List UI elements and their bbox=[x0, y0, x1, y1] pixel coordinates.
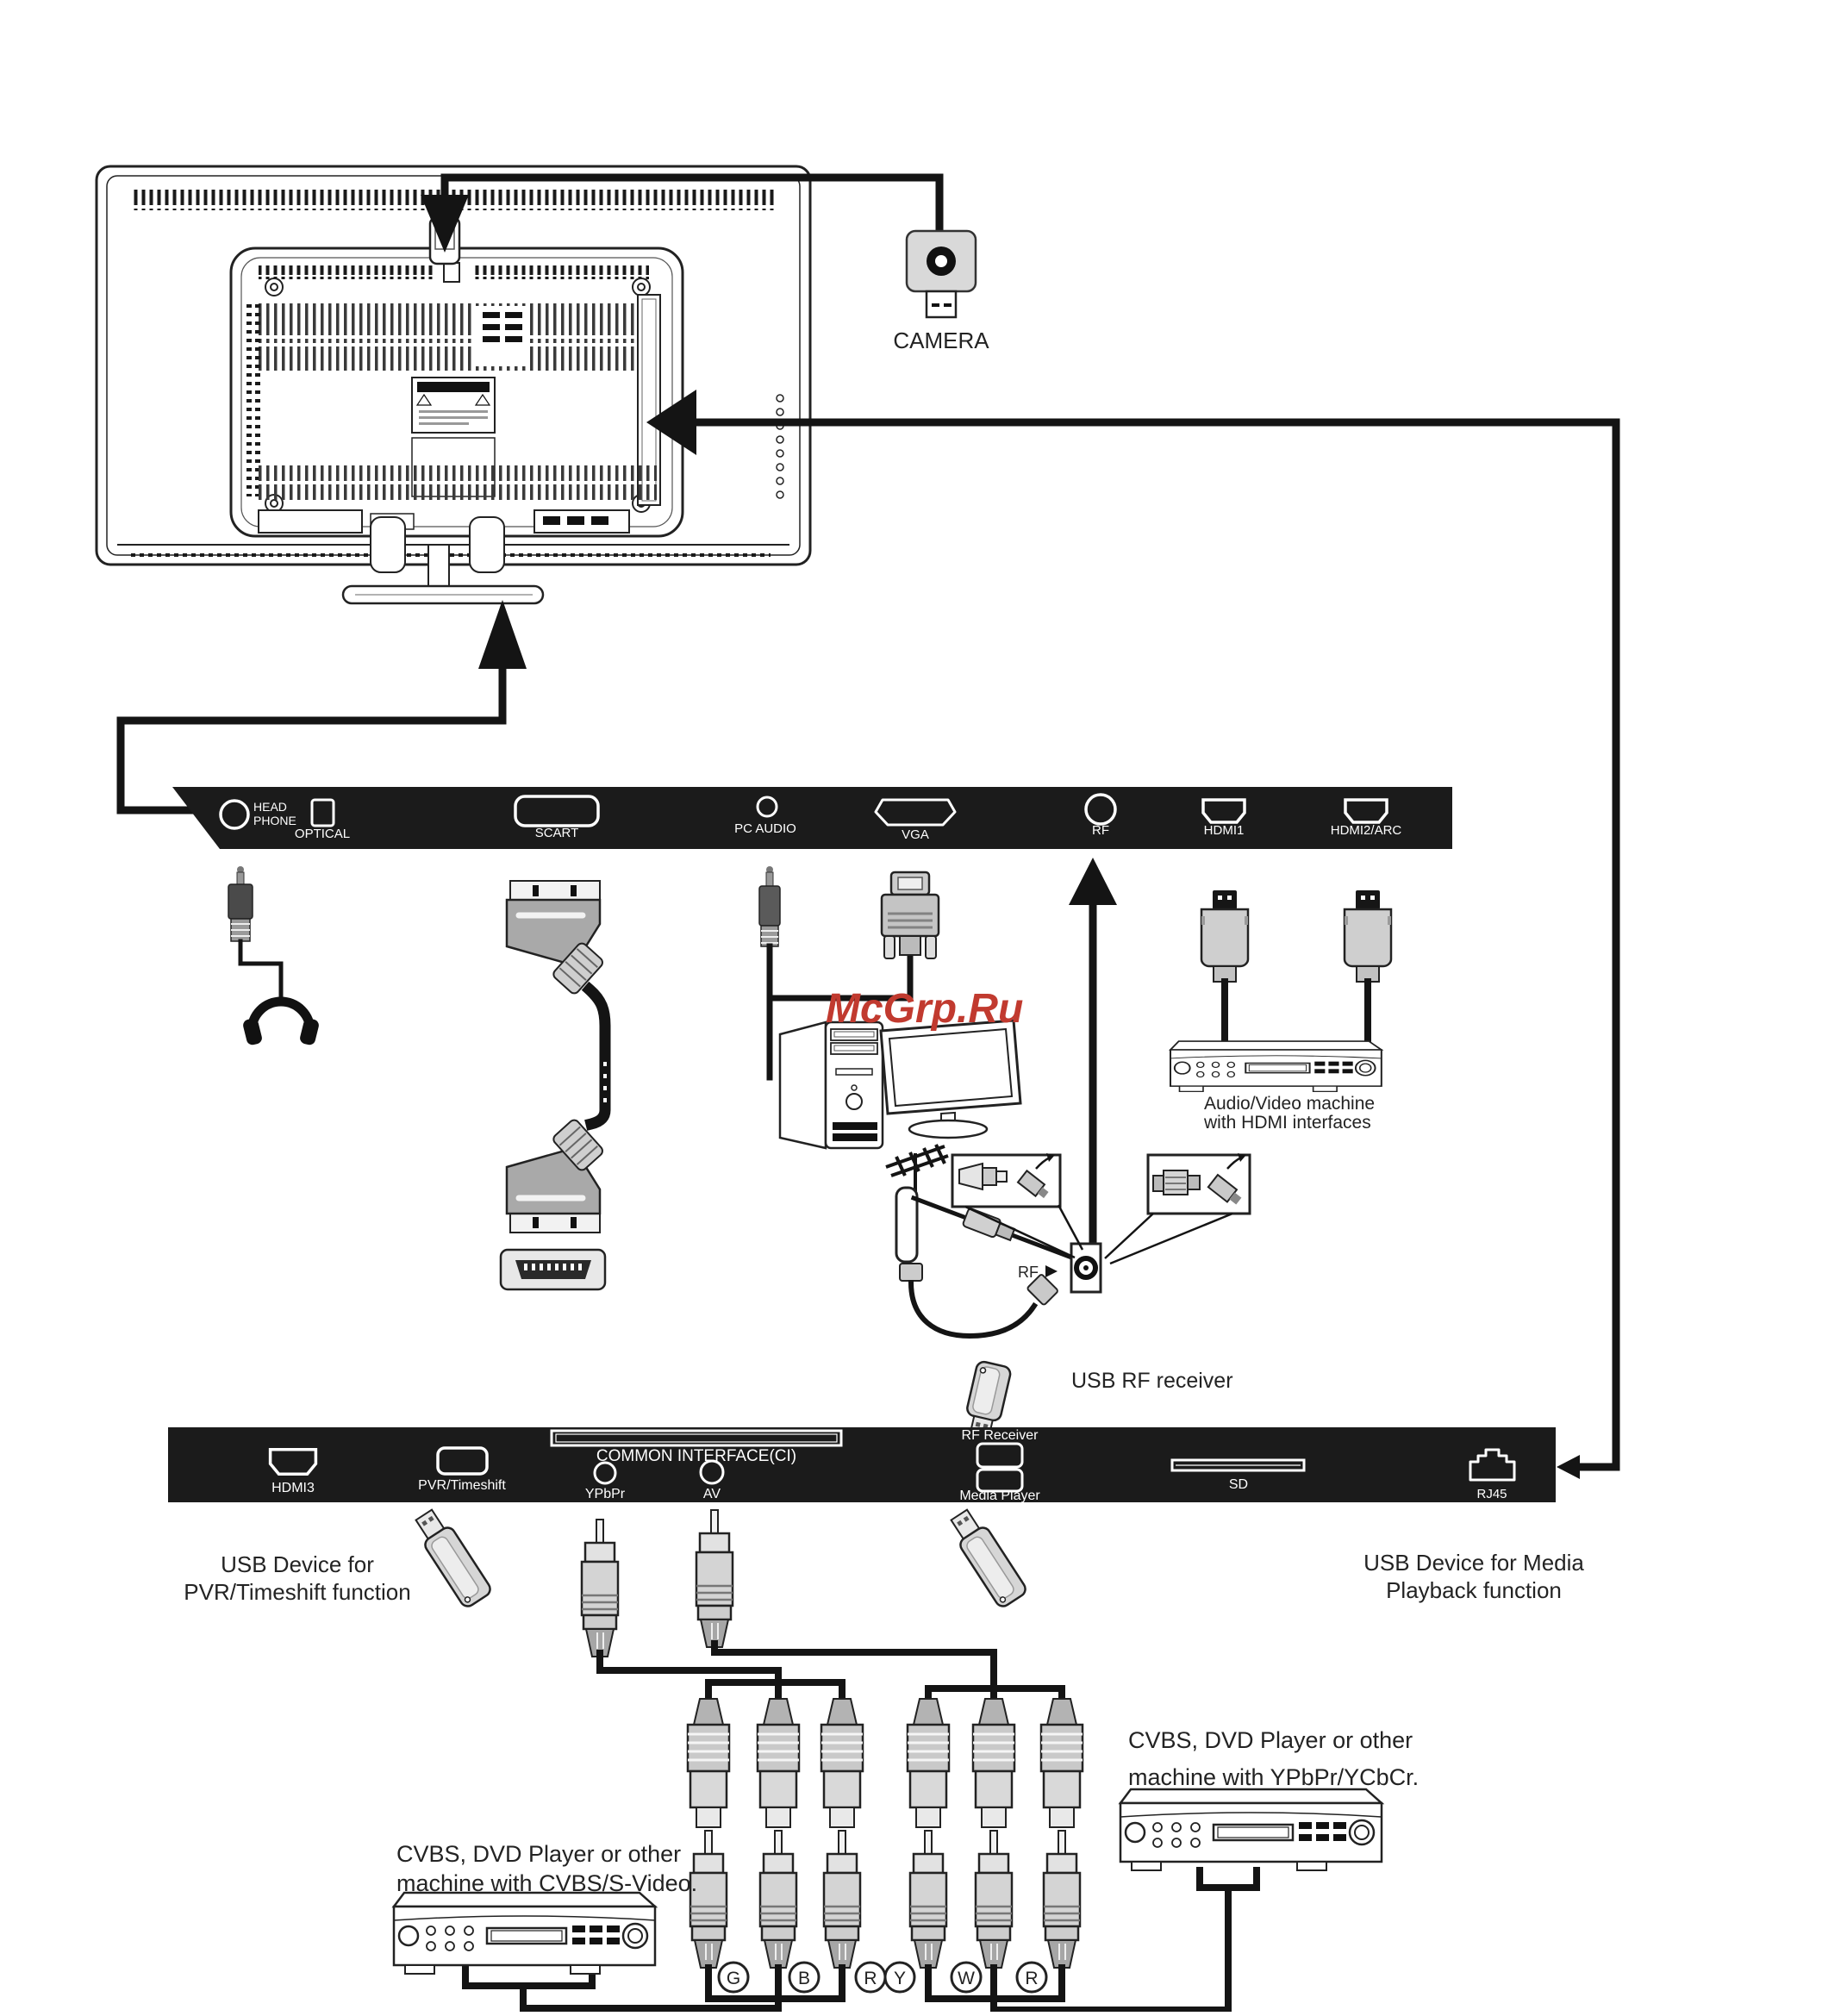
usb-pvr-label-1: USB Device for bbox=[221, 1551, 374, 1577]
bottom-panel-cable bbox=[121, 600, 527, 810]
svg-text:SD: SD bbox=[1229, 1477, 1248, 1492]
svg-text:RJ45: RJ45 bbox=[1476, 1487, 1507, 1501]
caution-label bbox=[412, 378, 495, 433]
svg-text:OPTICAL: OPTICAL bbox=[295, 827, 350, 841]
rca-connectors-top bbox=[688, 1699, 1083, 1827]
svg-text:PC AUDIO: PC AUDIO bbox=[734, 821, 796, 836]
ypbpr-plug bbox=[582, 1520, 618, 1657]
coax-callout-2 bbox=[1105, 1153, 1250, 1264]
rf-coax-loop-cable bbox=[911, 1283, 1034, 1336]
diagram-canvas: CAMERA HEAD PHONE OPTICAL SCART PC AUDIO… bbox=[0, 0, 1822, 2012]
svg-text:PHONE: PHONE bbox=[253, 814, 296, 827]
hdmi-cables bbox=[1225, 982, 1368, 1043]
dvd-ypbpr-label-2: machine with YPbPr/YCbCr. bbox=[1128, 1764, 1419, 1790]
svg-text:HDMI2/ARC: HDMI2/ARC bbox=[1331, 823, 1402, 838]
rf-input-connector bbox=[1071, 1244, 1101, 1292]
svg-text:VGA: VGA bbox=[902, 827, 929, 842]
usb-rf-receiver-label: USB RF receiver bbox=[1071, 1369, 1233, 1393]
svg-text:W: W bbox=[958, 1969, 975, 1988]
svg-text:Media Player: Media Player bbox=[959, 1489, 1040, 1503]
svg-text:AV: AV bbox=[703, 1487, 721, 1501]
pc-computer bbox=[780, 1020, 1020, 1148]
headphone-jack-plug bbox=[228, 866, 253, 941]
usb-media-stick bbox=[945, 1506, 1028, 1609]
hdmi-plug-2 bbox=[1345, 890, 1391, 982]
av-machine-label-1: Audio/Video machine bbox=[1204, 1094, 1375, 1114]
rear-panel-top: HEAD PHONE OPTICAL SCART PC AUDIO VGA RF… bbox=[172, 787, 1452, 849]
svg-text:HDMI1: HDMI1 bbox=[1204, 823, 1245, 838]
headphone-cable bbox=[240, 941, 281, 1002]
rca-connectors-bottom bbox=[690, 1831, 1080, 1968]
scart-socket bbox=[501, 1250, 605, 1289]
svg-text:PVR/Timeshift: PVR/Timeshift bbox=[418, 1478, 506, 1493]
hdmi-plug-1 bbox=[1201, 890, 1248, 982]
svg-text:HDMI3: HDMI3 bbox=[271, 1481, 315, 1495]
svg-text:SCART: SCART bbox=[535, 826, 579, 840]
svg-text:RF: RF bbox=[1092, 823, 1109, 838]
rf-pointer-icon bbox=[1045, 1265, 1058, 1277]
camera-label: CAMERA bbox=[893, 328, 989, 353]
watermark: McGrp.Ru bbox=[826, 986, 1023, 1032]
dvd-cvbs-label-1: CVBS, DVD Player or other bbox=[396, 1841, 681, 1867]
av-machine-label-2: with HDMI interfaces bbox=[1203, 1113, 1371, 1133]
vga-plug bbox=[882, 872, 939, 958]
dvd-player-ypbpr bbox=[1120, 1789, 1382, 1870]
dvd-player-cvbs bbox=[394, 1893, 655, 1974]
usb-pvr-label-2: PVR/Timeshift function bbox=[184, 1579, 410, 1605]
svg-text:COMMON INTERFACE(CI): COMMON INTERFACE(CI) bbox=[596, 1447, 796, 1465]
dvd-ypbpr-label-1: CVBS, DVD Player or other bbox=[1128, 1727, 1413, 1753]
rear-panel-bottom: HDMI3 PVR/Timeshift COMMON INTERFACE(CI)… bbox=[168, 1427, 1556, 1503]
usb-media-label-1: USB Device for Media bbox=[1363, 1550, 1584, 1576]
svg-text:YPbPr: YPbPr bbox=[585, 1487, 626, 1501]
usb-media-label-2: Playback function bbox=[1386, 1577, 1562, 1603]
av-plug bbox=[696, 1510, 733, 1647]
usb-pvr-stick bbox=[410, 1506, 493, 1609]
svg-text:B: B bbox=[798, 1969, 810, 1988]
svg-text:RF Receiver: RF Receiver bbox=[962, 1428, 1039, 1443]
coax-callout-1 bbox=[952, 1153, 1083, 1258]
av-machine-hdmi bbox=[1170, 1041, 1382, 1091]
headphones-icon bbox=[242, 1002, 321, 1046]
svg-text:G: G bbox=[727, 1969, 740, 1988]
camera bbox=[907, 231, 976, 317]
svg-text:R: R bbox=[864, 1969, 877, 1988]
scart-cable bbox=[507, 881, 605, 1233]
svg-text:HEAD: HEAD bbox=[253, 800, 287, 814]
rf-input-label: RF bbox=[1018, 1264, 1039, 1281]
audio-jack-plug bbox=[759, 866, 780, 946]
rf-arrow bbox=[1069, 858, 1117, 1244]
svg-text:Y: Y bbox=[894, 1969, 906, 1988]
svg-text:R: R bbox=[1025, 1969, 1038, 1988]
component-cables bbox=[600, 1644, 1062, 1699]
